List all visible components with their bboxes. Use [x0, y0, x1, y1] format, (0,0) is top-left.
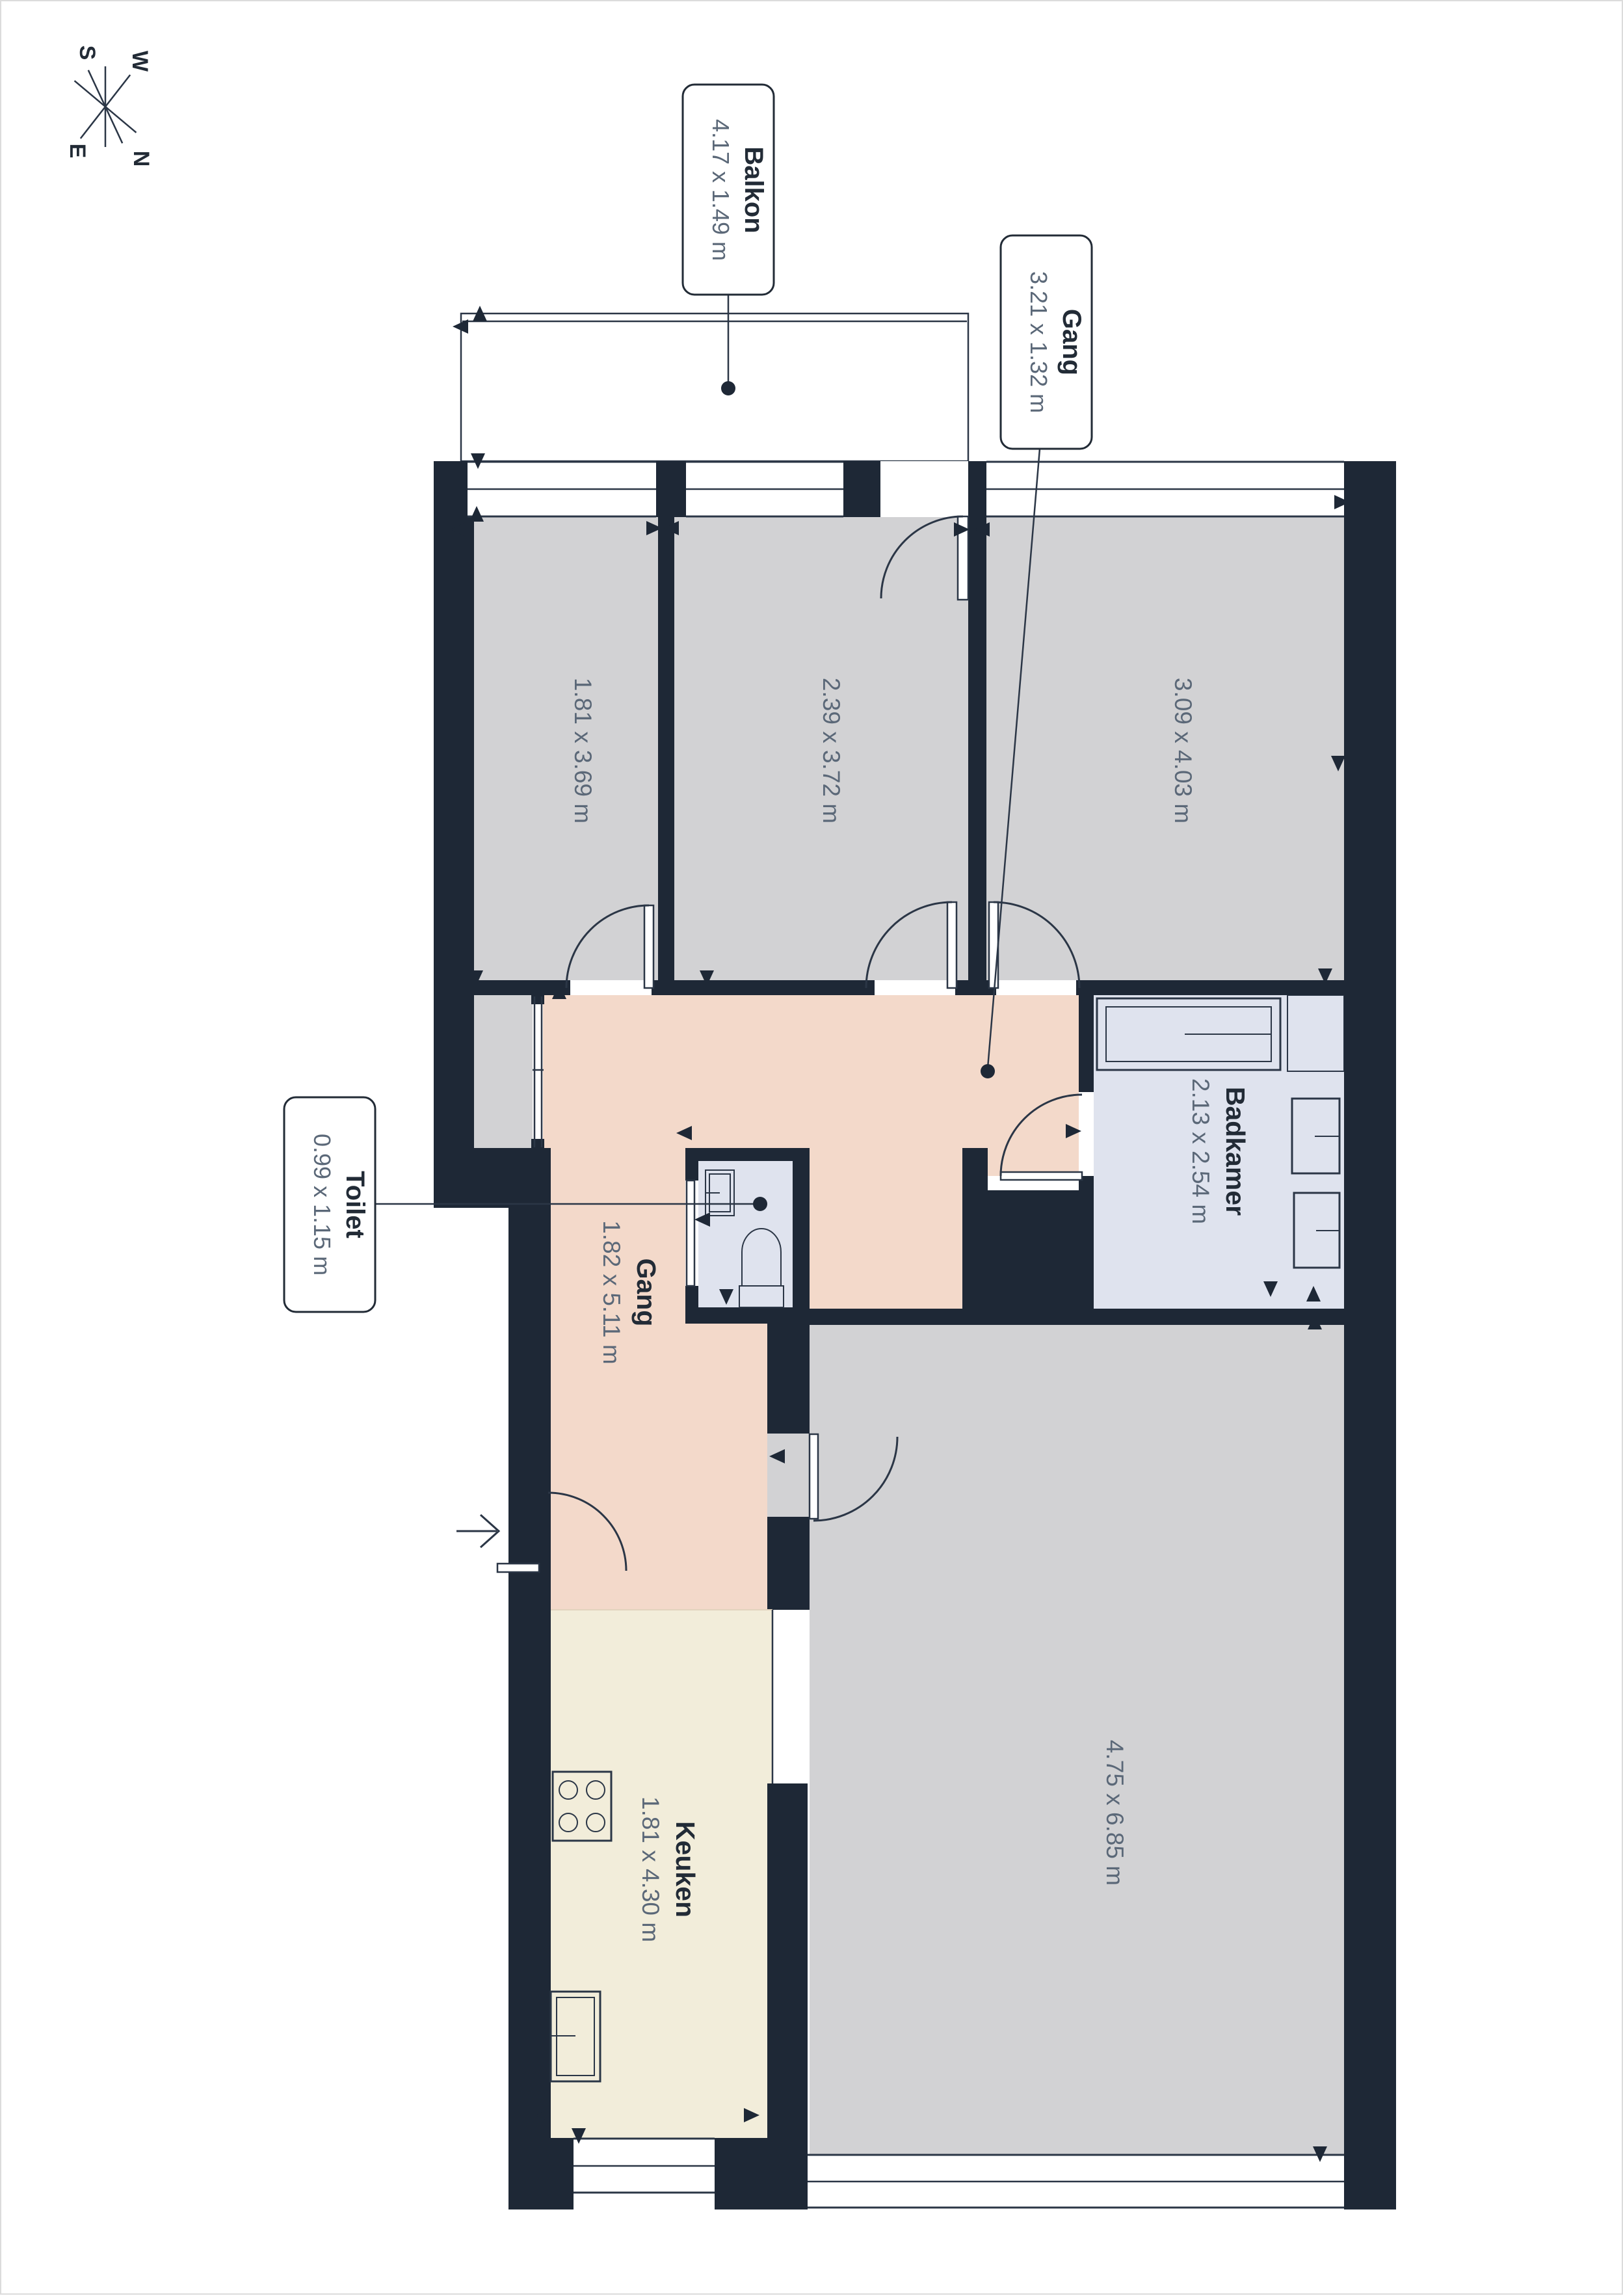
window [468, 461, 656, 517]
floorplan-canvas: Balkon 4.17 x 1.49 m Gang 3.21 x 1.32 m … [1, 1, 1623, 2296]
wall-segment [962, 1190, 1094, 1325]
wall-segment [793, 1161, 810, 1324]
gang-top-label-dims: 3.21 x 1.32 m [1025, 271, 1052, 413]
gang-top-label-name: Gang [1057, 309, 1086, 375]
bathroom-floor [1094, 995, 1344, 1309]
room3-dims: 3.09 x 4.03 m [1170, 678, 1196, 823]
gang-leader-dot [981, 1064, 995, 1078]
room3-floor [986, 517, 1344, 980]
gang-right-floor [810, 1148, 962, 1309]
balcony-door-opening [880, 461, 968, 517]
balkon-label-name: Balkon [739, 146, 768, 233]
wall-segment [715, 2138, 808, 2209]
room1-floor [474, 517, 658, 980]
wall-segment [962, 1148, 988, 1190]
badkamer-dims: 2.13 x 2.54 m [1187, 1078, 1214, 1224]
window [808, 2154, 1344, 2208]
entry-arrow-icon [456, 1515, 499, 1547]
compass-west: W [127, 51, 152, 72]
toilet-label-dims: 0.99 x 1.15 m [309, 1134, 336, 1275]
wall-segment [656, 461, 686, 517]
wall-segment [767, 1783, 808, 2138]
gang-lower-corridor-floor [685, 1324, 767, 1610]
wall-segment [434, 1148, 551, 1208]
compass-north: N [129, 151, 153, 167]
compass-east: E [65, 144, 90, 159]
keuken-name: Keuken [670, 1821, 700, 1917]
toilet-door-leaf [687, 1181, 694, 1286]
room3-door-leaf [989, 902, 998, 988]
balcony-floor [461, 314, 968, 461]
bathroom-door-leaf [1001, 1172, 1082, 1180]
window [686, 461, 843, 517]
room1-door-leaf [644, 905, 653, 988]
wall-segment [1344, 461, 1396, 517]
living-door-leaf [810, 1434, 818, 1519]
balkon-label-dims: 4.17 x 1.49 m [707, 119, 734, 261]
toilet-leader-dot [753, 1197, 767, 1211]
closet-partition [533, 996, 544, 1147]
closet-floor [474, 995, 533, 1148]
wall-segment [1079, 995, 1094, 1092]
wall-segment [508, 1208, 551, 2209]
window [574, 2138, 715, 2193]
toilet-label-name: Toilet [341, 1171, 369, 1238]
room2-dims: 2.39 x 3.72 m [818, 678, 845, 823]
room1-dims: 1.81 x 3.69 m [570, 678, 596, 823]
callout-gang-top: Gang 3.21 x 1.32 m [1001, 235, 1092, 449]
wall-segment [968, 517, 986, 995]
gang-left-corridor-floor [551, 1148, 685, 1610]
gang-dims: 1.82 x 5.11 m [598, 1220, 625, 1364]
wall-segment [658, 517, 674, 980]
living-floor [810, 1325, 1344, 2154]
living-dims: 4.75 x 6.85 m [1102, 1740, 1128, 1886]
wall-segment [685, 1161, 698, 1181]
wall-segment [434, 461, 474, 1208]
wall-segment [767, 1309, 1344, 1325]
wall-segment [685, 1286, 698, 1307]
keuken-dims: 1.81 x 4.30 m [637, 1796, 664, 1942]
living-door-floor [767, 1434, 810, 1517]
compass-south: S [75, 46, 99, 60]
balkon-leader-dot [721, 381, 735, 395]
floorplan-page: Balkon 4.17 x 1.49 m Gang 3.21 x 1.32 m … [0, 0, 1623, 2295]
callout-toilet: Toilet 0.99 x 1.15 m [284, 1097, 375, 1312]
wall-segment [551, 2138, 574, 2209]
floors [461, 314, 1344, 2154]
wall-segment [1076, 980, 1344, 995]
window [986, 461, 1344, 517]
wall-segment [652, 980, 875, 995]
callout-balkon: Balkon 4.17 x 1.49 m [683, 85, 774, 295]
entry-door-leaf [497, 1564, 539, 1572]
gang-name: Gang [631, 1259, 661, 1327]
wall-segment [1344, 517, 1396, 2209]
wall-segment [767, 1309, 810, 1434]
wall-segment [968, 461, 986, 517]
compass-lines [75, 66, 137, 147]
wall-segment [685, 1148, 810, 1161]
compass-rose: S W E N [65, 46, 153, 167]
badkamer-name: Badkamer [1221, 1087, 1250, 1216]
room2-door-leaf [947, 902, 957, 988]
gang-upper-floor [543, 995, 1079, 1148]
wall-segment [843, 461, 880, 517]
wall-segment [767, 1517, 810, 1610]
